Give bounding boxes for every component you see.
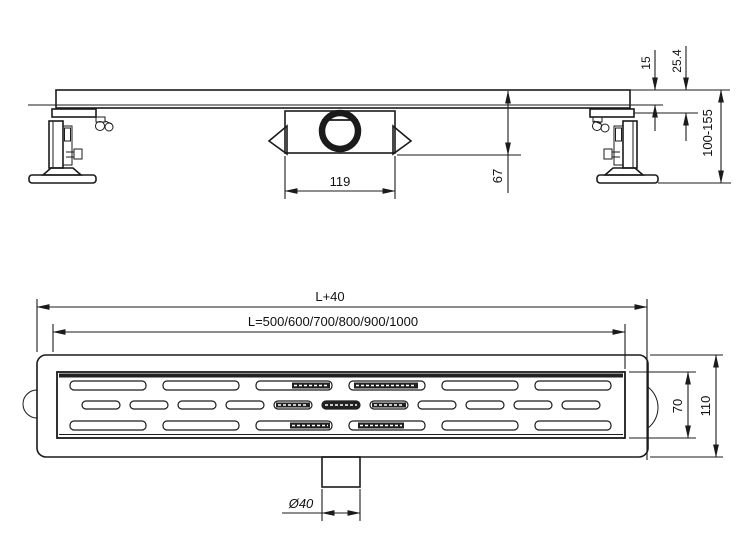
dim-length-options-label: L=500/600/700/800/900/1000 [248, 314, 418, 329]
dim-119-label: 119 [330, 174, 351, 189]
dim-l-plus-40-label: L+40 [315, 289, 344, 304]
drain-trap [269, 111, 411, 154]
technical-drawing-page: 119 67 15 25.4 100-15 [0, 0, 738, 555]
foot-cone-left [43, 168, 81, 175]
foot-cone-right [605, 168, 643, 175]
dim-grate-width: 70 [629, 372, 696, 438]
foot-base-right [597, 175, 658, 183]
wing-nut-right-1 [593, 122, 602, 131]
foot-screw-right [604, 149, 612, 159]
end-outlet-bump-right [648, 387, 658, 428]
adjustable-foot-left [29, 109, 113, 183]
dim-outlet-diameter-label: Ø40 [288, 496, 314, 511]
grate-frame-shadow [59, 374, 623, 378]
dim-100-155-label: 100-155 [700, 109, 715, 157]
dim-outlet-diameter: Ø40 [282, 489, 360, 521]
foot-screw-left [74, 149, 82, 159]
foot-post-left [49, 121, 63, 168]
dim-15-label: 15 [639, 56, 653, 70]
foot-base-left [29, 175, 96, 183]
wing-nut-left-1 [96, 122, 105, 131]
outlet-stub [322, 457, 360, 487]
dim-110-label: 110 [698, 396, 713, 417]
dim-67-label: 67 [490, 169, 505, 183]
dim-length-options: L=500/600/700/800/900/1000 [53, 314, 625, 369]
dim-body-width: 110 [650, 355, 723, 457]
foot-post-right [623, 121, 637, 168]
dim-70-label: 70 [670, 399, 685, 413]
drain-technical-drawing: 119 67 15 25.4 100-15 [0, 0, 738, 555]
side-elevation-view: 119 67 15 25.4 100-15 [28, 46, 731, 199]
trap-outlet-ring [322, 113, 358, 149]
wing-nut-right-2 [601, 124, 609, 132]
plan-view: L+40 L=500/600/700/800/900/1000 Ø40 70 [23, 289, 723, 521]
adjustable-foot-right [590, 109, 658, 183]
dim-trap-length: 119 [285, 156, 395, 199]
dim-adjustable-height: 100-155 [700, 90, 721, 183]
dim-channel-depth: 67 [397, 91, 521, 193]
dim-25-4-label: 25.4 [670, 49, 684, 73]
end-outlet-bump-left [23, 390, 37, 418]
